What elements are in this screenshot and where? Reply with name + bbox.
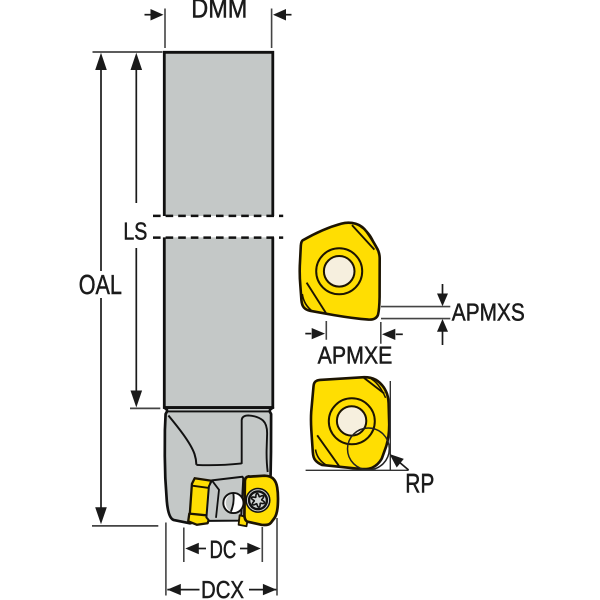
svg-text:DC: DC (210, 536, 237, 564)
svg-text:DCX: DCX (201, 577, 244, 600)
svg-text:RP: RP (405, 468, 434, 498)
svg-text:DMM: DMM (191, 0, 247, 24)
svg-text:OAL: OAL (79, 269, 122, 300)
svg-text:APMXS: APMXS (452, 300, 525, 327)
svg-text:LS: LS (123, 219, 147, 246)
svg-text:APMXE: APMXE (318, 343, 393, 370)
